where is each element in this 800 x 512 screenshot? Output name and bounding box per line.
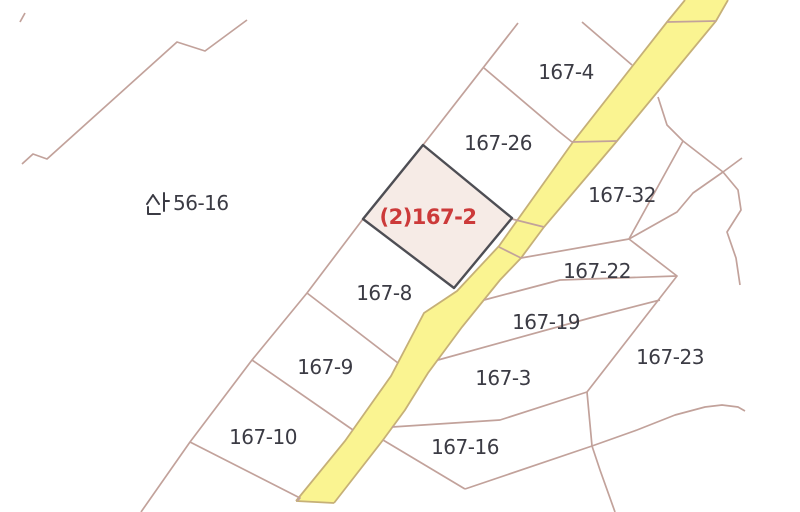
- parcel-label-167-32: 167-32: [588, 183, 656, 207]
- cadastral-map-canvas[interactable]: 167-4167-2656-16(2)167-2167-32167-22167-…: [0, 0, 800, 512]
- parcel-label-167-9: 167-9: [297, 355, 353, 379]
- cadastral-map-viewer[interactable]: 167-4167-2656-16(2)167-2167-32167-22167-…: [0, 0, 800, 512]
- parcel-label-167-22: 167-22: [563, 259, 631, 283]
- parcel-label-167-4: 167-4: [538, 60, 594, 84]
- east-stub: [723, 158, 742, 172]
- east-line-from-road: [658, 97, 741, 285]
- parcel-label-167-16: 167-16: [431, 435, 499, 459]
- parcel-label-167-10: 167-10: [229, 425, 297, 449]
- road-parcel[interactable]: [296, 0, 728, 503]
- parcel-label-167-19: 167-19: [512, 310, 580, 334]
- division-167-32-22: [521, 239, 629, 258]
- parcel-label-167-23: 167-23: [636, 345, 704, 369]
- parcel-label-167-8: 167-8: [356, 281, 412, 305]
- map-edge-tick: [20, 13, 25, 22]
- wavy-east-line: [592, 405, 745, 446]
- svg-text:56-16: 56-16: [173, 191, 229, 215]
- sliver-line-top: [582, 22, 632, 65]
- boundary-south-of-j2: [587, 392, 615, 512]
- parcel-label-2167-2: (2)167-2: [380, 205, 477, 229]
- parcel-label-167-26: 167-26: [464, 131, 532, 155]
- parcel-10-south-boundary: [190, 442, 300, 501]
- parcel-boundaries-west: [20, 13, 632, 512]
- mountain-zigzag-line: [22, 20, 247, 164]
- division-167-3-16: [392, 392, 587, 427]
- parcel-label-산56-16: 56-16: [147, 191, 229, 215]
- parcel-label-167-3: 167-3: [475, 366, 531, 390]
